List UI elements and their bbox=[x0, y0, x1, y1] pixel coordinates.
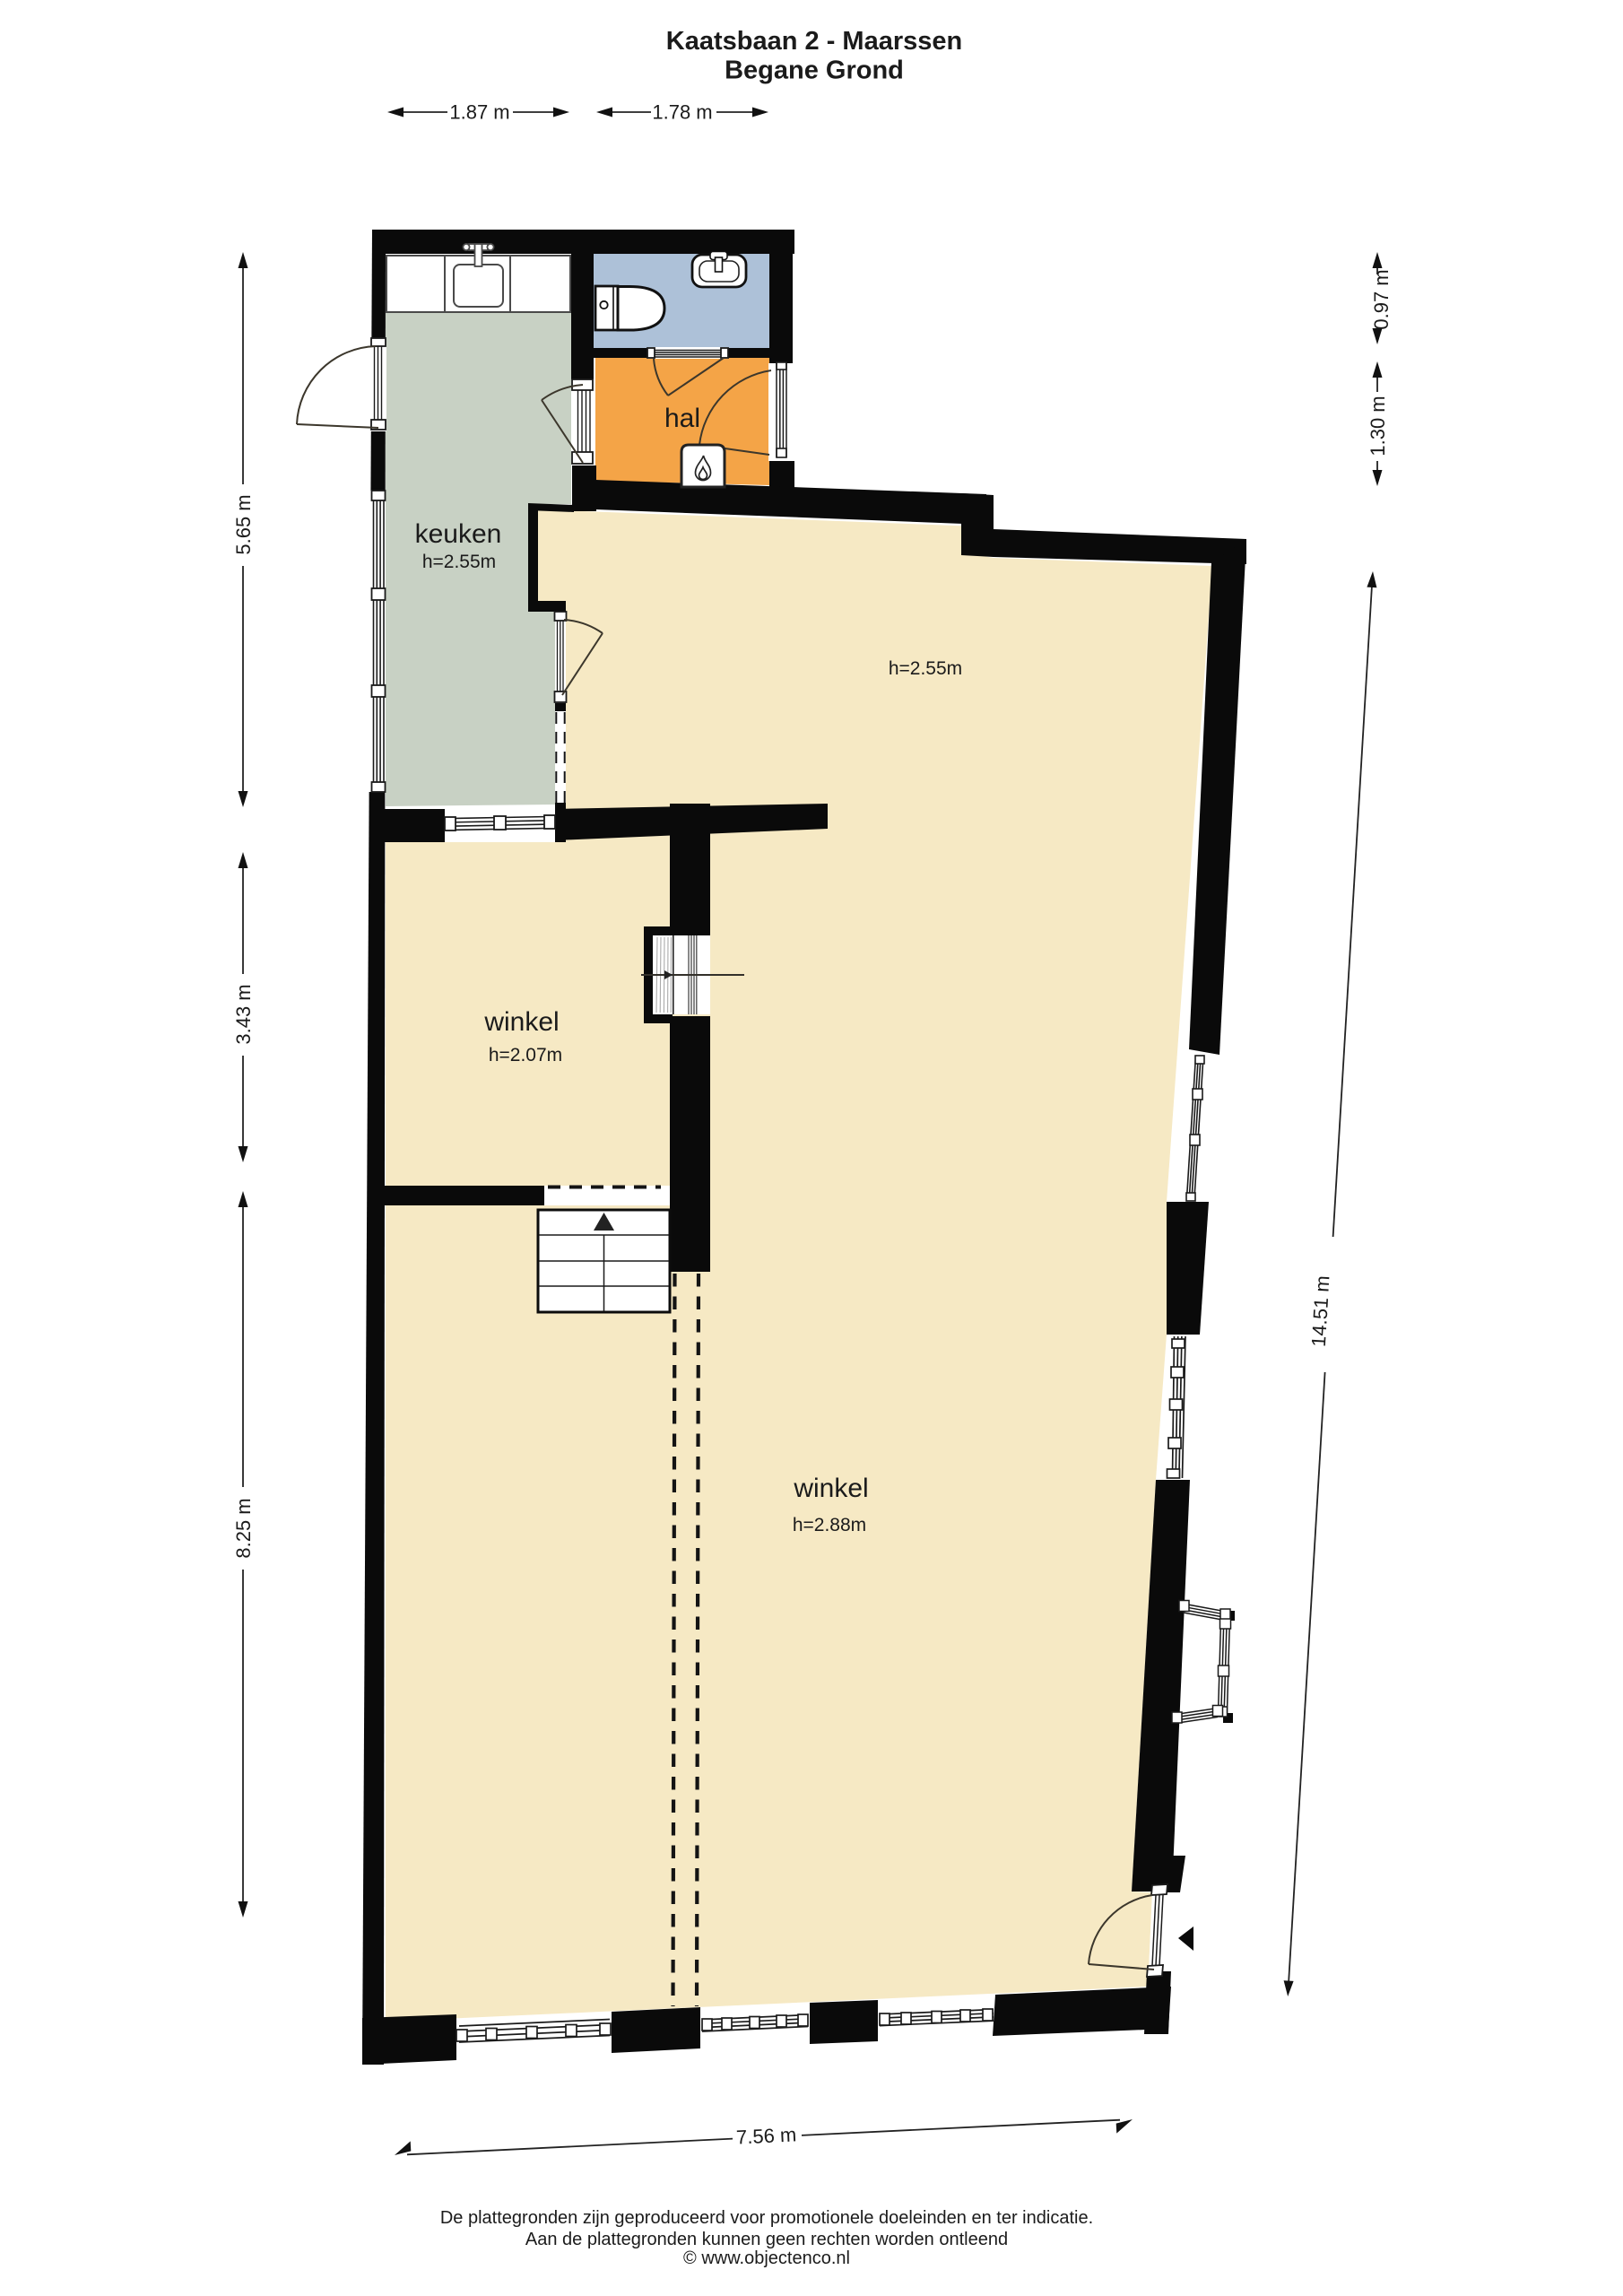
svg-text:h=2.55m: h=2.55m bbox=[422, 552, 496, 572]
svg-text:1.87 m: 1.87 m bbox=[449, 101, 509, 124]
svg-text:winkel: winkel bbox=[483, 1007, 559, 1037]
svg-text:1.78 m: 1.78 m bbox=[652, 101, 712, 124]
svg-text:© www.objectenco.nl: © www.objectenco.nl bbox=[683, 2248, 850, 2268]
svg-text:14.51 m: 14.51 m bbox=[1307, 1275, 1334, 1348]
svg-text:winkel: winkel bbox=[793, 1474, 868, 1503]
svg-text:Kaatsbaan 2 - Maarssen: Kaatsbaan 2 - Maarssen bbox=[666, 27, 962, 56]
svg-text:h=2.88m: h=2.88m bbox=[793, 1515, 866, 1535]
svg-text:h=2.07m: h=2.07m bbox=[489, 1045, 562, 1065]
svg-text:7.56 m: 7.56 m bbox=[735, 2123, 796, 2148]
svg-text:8.25 m: 8.25 m bbox=[232, 1498, 255, 1558]
svg-text:hal: hal bbox=[664, 404, 700, 433]
svg-text:1.30 m: 1.30 m bbox=[1367, 396, 1389, 456]
svg-text:Begane Grond: Begane Grond bbox=[725, 57, 904, 85]
svg-text:0.97 m: 0.97 m bbox=[1370, 269, 1393, 329]
svg-text:3.43 m: 3.43 m bbox=[232, 984, 255, 1044]
svg-text:De plattegronden zijn geproduc: De plattegronden zijn geproduceerd voor … bbox=[440, 2208, 1093, 2228]
svg-text:h=2.55m: h=2.55m bbox=[889, 658, 962, 679]
svg-text:Aan de plattegronden kunnen ge: Aan de plattegronden kunnen geen rechten… bbox=[525, 2230, 1008, 2249]
svg-text:5.65 m: 5.65 m bbox=[232, 494, 255, 554]
svg-text:keuken: keuken bbox=[415, 519, 502, 549]
